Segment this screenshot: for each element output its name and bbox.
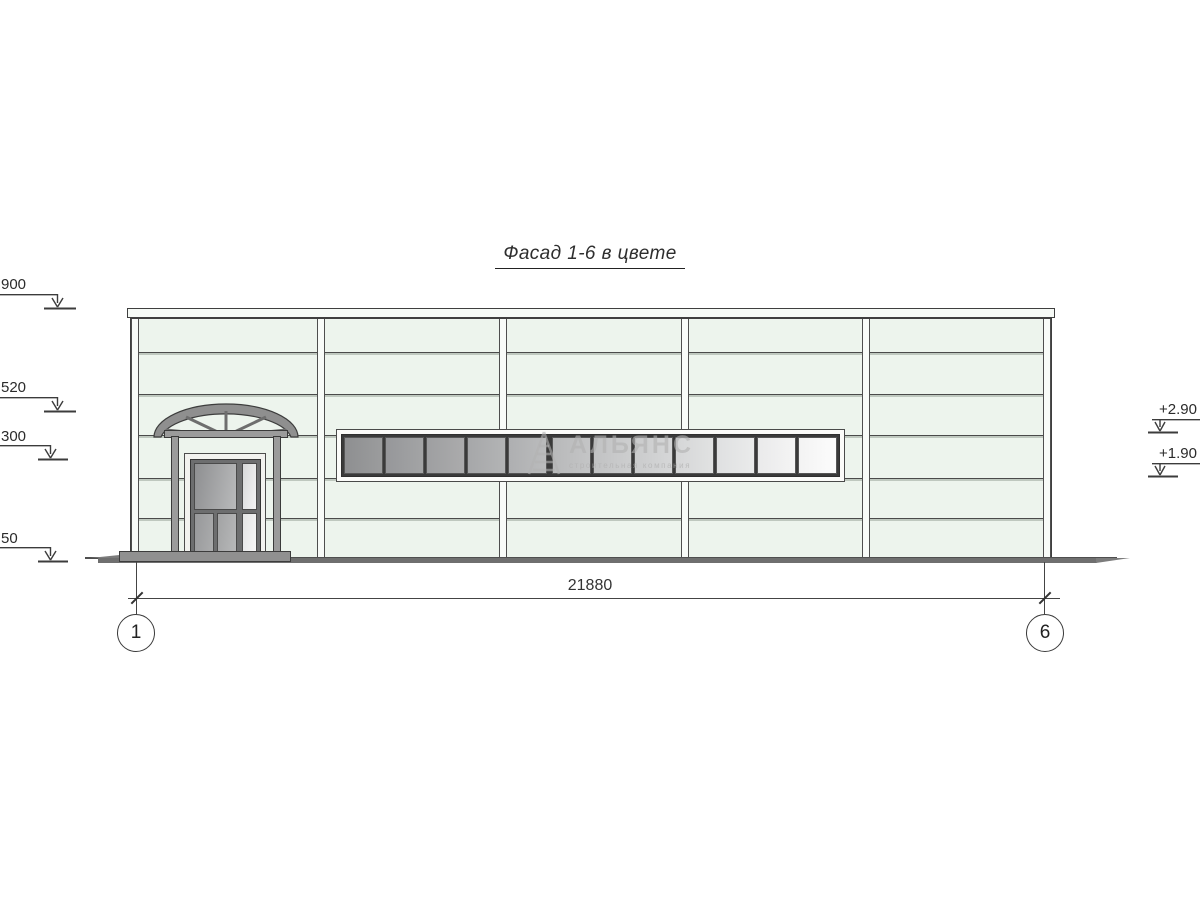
window-pane [634, 437, 673, 474]
window-pane [508, 437, 547, 474]
building-parapet-cap [127, 308, 1055, 318]
elevation-marker-icon [0, 294, 80, 312]
axis-number: 6 [1040, 622, 1051, 644]
pilaster [862, 319, 870, 557]
pilaster [317, 319, 325, 557]
canopy-beam [164, 430, 288, 438]
axis-number: 1 [131, 622, 142, 644]
elevation-label: 50 [1, 530, 18, 547]
elevation-marker-icon [1140, 419, 1200, 437]
elevation-label: +2.90 [1159, 401, 1197, 418]
axis-marker-1: 1 [117, 614, 155, 652]
window-pane [675, 437, 714, 474]
window-pane [385, 437, 424, 474]
sidelight-glass-pane [242, 463, 257, 510]
canopy-post-left [171, 436, 179, 558]
corner-pilaster-right [1043, 319, 1051, 557]
dimension-line [128, 598, 1060, 599]
ground-slope-right [1096, 558, 1130, 563]
drawing-title-text: Фасад 1-6 в цвете [495, 243, 684, 269]
elevation-label: 300 [1, 428, 26, 445]
door-glass-pane [194, 513, 214, 553]
corner-pilaster-left [131, 319, 139, 557]
axis-marker-6: 6 [1026, 614, 1064, 652]
door-glass-pane [194, 463, 237, 510]
facade-drawing-canvas: Фасад 1-6 в цвете [0, 0, 1200, 900]
entrance-porch-step [119, 551, 291, 562]
entrance-door [190, 459, 261, 558]
elevation-label: 900 [1, 276, 26, 293]
axis-line-1 [136, 562, 137, 614]
dimension-value: 21880 [520, 577, 660, 595]
drawing-title: Фасад 1-6 в цвете [430, 243, 750, 269]
panel-joint-line [131, 394, 1051, 397]
elevation-marker-icon [0, 547, 80, 565]
window-pane [716, 437, 755, 474]
window-pane [593, 437, 632, 474]
door-glass-pane [217, 513, 237, 553]
elevation-marker-icon [0, 397, 80, 415]
panel-joint-line [131, 518, 1051, 521]
canopy-post-right [273, 436, 281, 558]
window-pane [344, 437, 383, 474]
window-pane [757, 437, 796, 474]
ribbon-window-frame [341, 434, 840, 477]
window-pane [798, 437, 837, 474]
panel-joint-line [131, 352, 1051, 355]
elevation-marker-icon [0, 445, 80, 463]
ribbon-window [336, 429, 845, 482]
window-pane [467, 437, 506, 474]
axis-line-6 [1044, 562, 1045, 614]
window-pane [426, 437, 465, 474]
elevation-marker-icon [1140, 463, 1200, 481]
window-pane [552, 437, 591, 474]
elevation-label: +1.90 [1159, 445, 1197, 462]
elevation-label: 520 [1, 379, 26, 396]
sidelight-glass-pane [242, 513, 257, 553]
